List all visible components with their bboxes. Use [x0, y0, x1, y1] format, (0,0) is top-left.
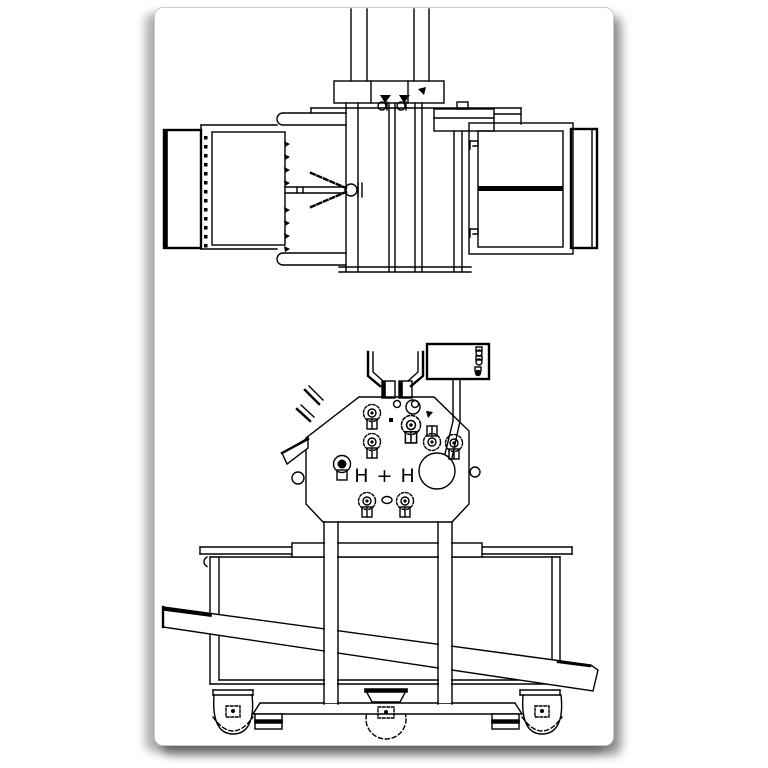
technical-drawing: H + H [155, 8, 613, 745]
divider-band [478, 186, 563, 191]
caster-wheel-left [213, 695, 253, 734]
foot-pad-left [255, 714, 282, 729]
head-block [334, 81, 444, 103]
discharge-chute [163, 607, 598, 691]
fork-prongs [368, 352, 423, 398]
left-end-cap [164, 130, 201, 248]
arrow-mark-icon [418, 87, 426, 95]
foot-pad-right [492, 714, 519, 729]
plan-view [164, 9, 597, 272]
drawing-page: H + H [154, 7, 614, 746]
right-end-cap [571, 129, 597, 248]
right-table-assembly [434, 102, 597, 254]
hook-clip-icon [470, 229, 478, 237]
head-front-view: H + H [282, 344, 489, 522]
rail-hook-icon [204, 557, 207, 567]
top-rail [200, 543, 572, 567]
side-pins [297, 386, 323, 421]
rivet-dot-column [204, 136, 208, 248]
caster-wheel-right [522, 695, 562, 734]
ram-column [351, 9, 429, 81]
step-block [434, 109, 494, 131]
screenshot-stage: H + H [0, 0, 768, 768]
feed-rod [285, 173, 362, 207]
rod-pin-circle [345, 184, 357, 196]
edge-circle [470, 467, 480, 477]
cart-side-view [163, 522, 598, 739]
hook-clip-icon [470, 141, 478, 149]
logo-text: H + H [354, 465, 416, 487]
left-table-assembly [164, 113, 362, 265]
left-arm [282, 438, 308, 484]
